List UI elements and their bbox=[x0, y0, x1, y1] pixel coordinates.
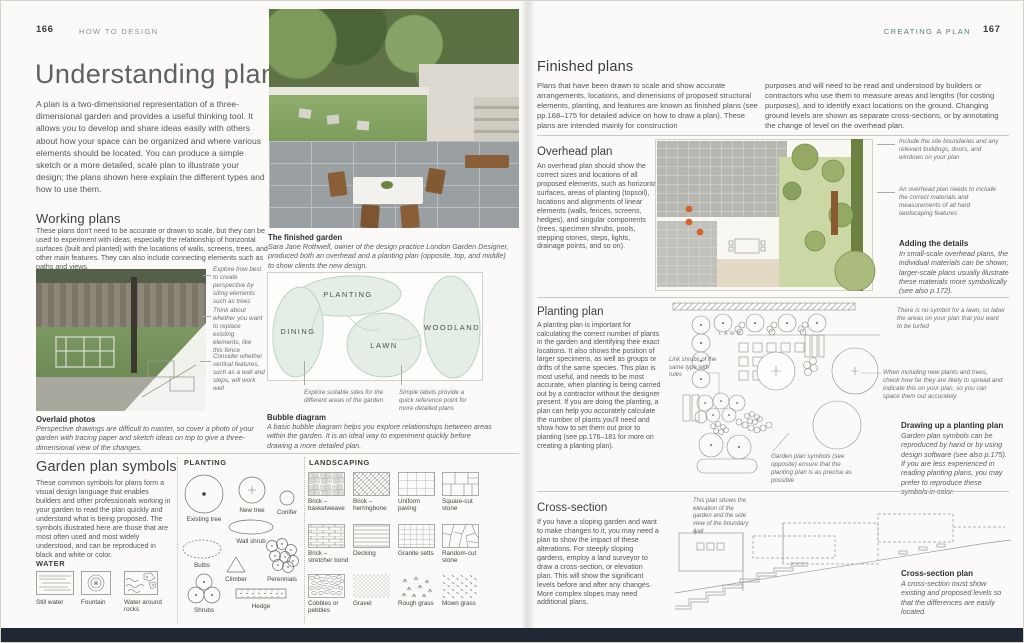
finished-garden-photo bbox=[269, 9, 519, 228]
symbol-square-cut-stone bbox=[442, 472, 479, 496]
symbol-label: Bulbs bbox=[180, 562, 224, 569]
symbol-label: Cobbles or pebbles bbox=[308, 600, 348, 614]
symbol-label: Still water bbox=[36, 599, 76, 606]
planting-plan-body: A planting plan is important for calcula… bbox=[537, 322, 661, 451]
leader-line bbox=[200, 361, 211, 362]
symbol-cobbles bbox=[308, 574, 345, 598]
symbol-label: Brick – herringbone bbox=[353, 498, 395, 512]
working-plans-body: These plans don't need to be accurate or… bbox=[36, 227, 274, 272]
cross-section-caption-body: A cross-section must show existing and p… bbox=[901, 579, 1009, 616]
symbol-fountain bbox=[81, 571, 111, 595]
water-symbols-group: WATER Still water Fountain Water around … bbox=[34, 559, 179, 623]
photo-planter-edge bbox=[269, 87, 429, 95]
cross-section-annotation: This plan shows the elevation of the gar… bbox=[693, 498, 751, 536]
overlaid-photo bbox=[36, 269, 206, 411]
symbol-brick-stretcher-bond bbox=[308, 524, 345, 548]
symbol-uniform-paving bbox=[398, 472, 435, 496]
symbol-granite-setts bbox=[398, 524, 435, 548]
symbol-label: Water around rocks bbox=[124, 599, 166, 613]
leader-line bbox=[401, 365, 402, 385]
symbol-label: Gravel bbox=[353, 600, 395, 607]
section-divider bbox=[537, 135, 1009, 136]
page-number-left: 166 bbox=[36, 24, 53, 35]
overhead-plan-body: An overhead plan should show the correct… bbox=[537, 162, 659, 251]
section-divider bbox=[36, 453, 519, 454]
leader-line bbox=[304, 361, 305, 385]
finished-plans-heading: Finished plans bbox=[537, 59, 633, 75]
planting-annotation-spread: When including new plants and trees, che… bbox=[883, 369, 1005, 401]
symbol-label: Decking bbox=[353, 550, 395, 557]
bottom-band bbox=[1, 628, 1023, 642]
bubble-diagram: PLANTING DINING WOODLAND LAWN bbox=[267, 272, 483, 381]
drawing-up-body: Garden plan symbols can be reproduced by… bbox=[901, 431, 1009, 497]
finished-garden-caption-title: The finished garden bbox=[268, 233, 342, 242]
cross-section-heading: Cross-section bbox=[537, 502, 607, 514]
leader-line bbox=[877, 192, 895, 193]
planting-annotation-symbols: Garden plan symbols (see opposite) ensur… bbox=[771, 453, 863, 485]
symbol-label: Rough grass bbox=[398, 600, 438, 607]
bubble-label-planting: PLANTING bbox=[318, 290, 378, 299]
bubble-label-woodland: WOODLAND bbox=[422, 323, 482, 332]
symbol-label: Hedge bbox=[239, 603, 283, 610]
lawn-label: LAWN bbox=[719, 331, 743, 337]
running-head-right: CREATING A PLAN bbox=[791, 27, 971, 36]
cross-section-body: If you have a sloping garden and want to… bbox=[537, 518, 659, 607]
bubble-annotation-left: Explore suitable sites for the different… bbox=[304, 389, 384, 405]
section-divider bbox=[537, 297, 1009, 298]
bubble-label-lawn: LAWN bbox=[362, 341, 406, 350]
finished-plans-col1: Plans that have been drawn to scale and … bbox=[537, 81, 763, 131]
symbol-label: Brick – basketweave bbox=[308, 498, 350, 512]
symbol-random-cut-stone bbox=[442, 524, 479, 548]
photo-annotation-3: Consider whether vertical features, such… bbox=[213, 353, 265, 393]
running-head-left: HOW TO DESIGN bbox=[79, 27, 159, 36]
symbol-label: Fountain bbox=[81, 599, 117, 606]
symbol-label: Mown grass bbox=[442, 600, 484, 607]
symbol-label: Existing tree bbox=[182, 516, 226, 523]
drawing-up-title: Drawing up a planting plan bbox=[901, 421, 1003, 430]
symbol-label: Uniform paving bbox=[398, 498, 438, 512]
bubble-caption-title: Bubble diagram bbox=[267, 413, 326, 422]
working-plans-heading: Working plans bbox=[36, 211, 121, 226]
symbol-label: Brick – stretcher bond bbox=[308, 550, 350, 564]
symbol-label: Square-cut stone bbox=[442, 498, 482, 512]
finished-garden-caption-body: Sara Jane Rothwell, owner of the design … bbox=[268, 242, 511, 270]
planting-plan-heading: Planting plan bbox=[537, 306, 604, 318]
photo-table-plant bbox=[381, 181, 393, 189]
cross-section-caption-title: Cross-section plan bbox=[901, 569, 973, 578]
adding-details-body: In small-scale overhead plans, the indiv… bbox=[899, 249, 1009, 296]
page-number-right: 167 bbox=[983, 24, 1000, 35]
planting-symbols-group: PLANTING Existing tree New t bbox=[179, 456, 305, 626]
symbol-label: Climber bbox=[214, 576, 258, 583]
landscaping-symbols-group: LANDSCAPING bbox=[307, 456, 515, 626]
book-spread: 166 HOW TO DESIGN Understanding plans A … bbox=[0, 0, 1024, 643]
symbol-rough-grass bbox=[398, 574, 435, 598]
water-heading: WATER bbox=[36, 559, 65, 568]
leader-line bbox=[877, 144, 895, 145]
leader-line bbox=[203, 275, 211, 276]
sketch-lines bbox=[36, 269, 206, 411]
photo-chair bbox=[360, 204, 380, 228]
photo-bench bbox=[465, 155, 509, 168]
landscaping-heading: LANDSCAPING bbox=[309, 458, 370, 467]
bubble-label-dining: DINING bbox=[276, 327, 320, 336]
photo-annotation-1: Explore how best to create perspective b… bbox=[213, 266, 263, 306]
symbol-label: Random-cut stone bbox=[442, 550, 482, 564]
symbol-gravel bbox=[353, 574, 390, 598]
symbol-brick-herringbone bbox=[353, 472, 390, 496]
photo-chair bbox=[400, 204, 420, 228]
symbol-label: Perennials bbox=[260, 576, 304, 583]
symbol-mown-grass bbox=[442, 574, 479, 598]
overhead-annotation-1: Include the site boundaries and any rele… bbox=[899, 138, 1005, 162]
photo-chair bbox=[327, 171, 347, 197]
overlaid-photos-caption-body: Perspective drawings are difficult to ma… bbox=[36, 424, 258, 452]
intro-paragraph: A plan is a two-dimensional representati… bbox=[36, 98, 269, 196]
symbols-body: These common symbols for plans form a vi… bbox=[36, 479, 174, 559]
leader-line bbox=[203, 316, 211, 317]
page-title: Understanding plans bbox=[35, 59, 290, 90]
symbol-still-water bbox=[36, 571, 74, 595]
overhead-plan-heading: Overhead plan bbox=[537, 146, 612, 158]
symbol-label: Wall shrub bbox=[229, 538, 273, 545]
section-divider bbox=[537, 491, 1009, 492]
adding-details-title: Adding the details bbox=[899, 239, 968, 248]
bubble-caption-body: A basic bubble diagram helps you explore… bbox=[267, 422, 495, 450]
symbol-label: Granite setts bbox=[398, 550, 438, 557]
symbol-label: Shrubs bbox=[182, 607, 226, 614]
photo-lawn bbox=[269, 95, 427, 141]
planting-annotation-lawn: There is no symbol for a lawn, so label … bbox=[897, 307, 1005, 331]
overlaid-photos-caption-title: Overlaid photos bbox=[36, 415, 95, 424]
symbol-brick-basketweave bbox=[308, 472, 345, 496]
symbol-decking bbox=[353, 524, 390, 548]
photo-annotation-2: Think about whether you want to replace … bbox=[213, 307, 263, 355]
symbol-label: Conifer bbox=[268, 509, 306, 516]
finished-plans-col2: purposes and will need to be read and un… bbox=[765, 81, 1009, 131]
planting-annotation-link: Link shrubs of the same type with rules bbox=[669, 357, 719, 380]
overhead-annotation-2: An overhead plan needs to include the co… bbox=[899, 186, 1005, 218]
symbols-heading: Garden plan symbols bbox=[36, 459, 177, 475]
bubble-annotation-right: Simple labels provide a quick reference … bbox=[399, 389, 479, 413]
page-fold bbox=[521, 1, 535, 630]
symbol-water-around-rocks bbox=[124, 571, 158, 595]
overhead-plan-drawing bbox=[655, 139, 879, 291]
